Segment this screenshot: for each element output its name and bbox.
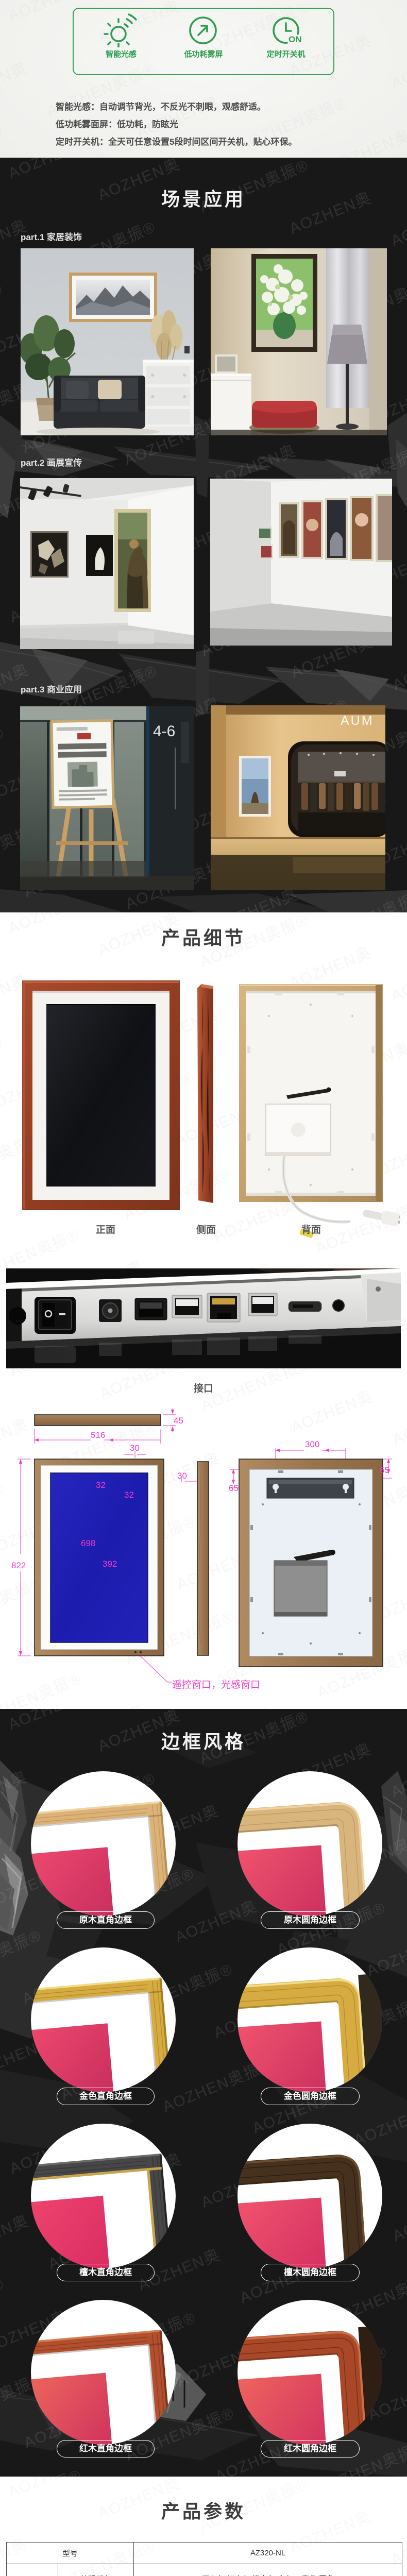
svg-text:32: 32 (124, 1490, 134, 1500)
svg-text:遥控窗口，光感窗口: 遥控窗口，光感窗口 (172, 1679, 260, 1690)
svg-text:4-6: 4-6 (153, 723, 175, 740)
svg-text:516: 516 (91, 1430, 105, 1440)
svg-text:30: 30 (177, 1471, 187, 1481)
svg-text:AUM: AUM (341, 714, 374, 728)
svg-text:ON: ON (289, 35, 302, 44)
svg-text:65: 65 (380, 1465, 389, 1475)
svg-text:300: 300 (305, 1439, 319, 1449)
svg-text:392: 392 (103, 1559, 117, 1569)
svg-text:698: 698 (81, 1538, 95, 1548)
svg-text:32: 32 (96, 1480, 106, 1490)
svg-text:30: 30 (130, 1443, 140, 1453)
svg-text:65: 65 (229, 1483, 239, 1493)
svg-text:822: 822 (11, 1561, 26, 1570)
svg-text:45: 45 (174, 1416, 183, 1426)
